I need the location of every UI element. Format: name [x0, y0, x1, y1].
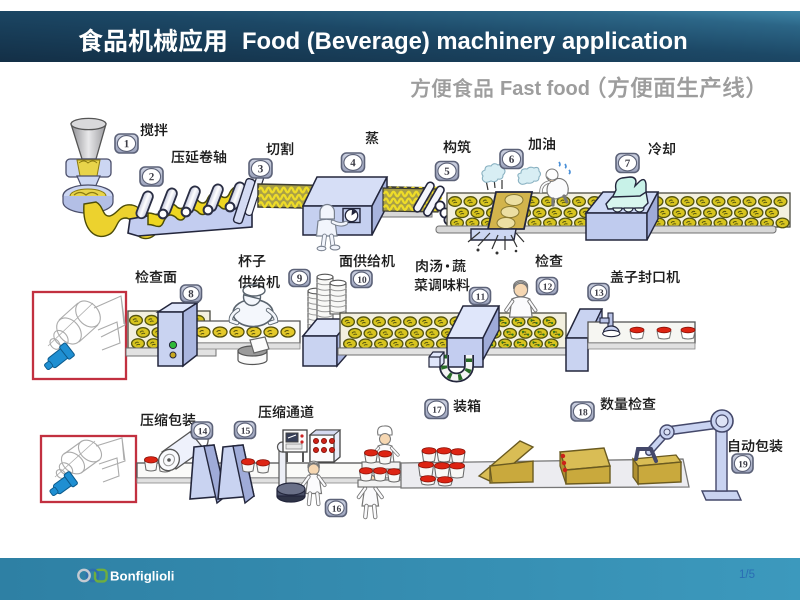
svg-text:Fast food: Fast food: [500, 78, 590, 100]
svg-text:Food (Beverage) machinery appl: Food (Beverage) machinery application: [242, 28, 688, 55]
svg-text:Bonfiglioli: Bonfiglioli: [110, 569, 174, 584]
svg-text:1/5: 1/5: [739, 569, 755, 581]
